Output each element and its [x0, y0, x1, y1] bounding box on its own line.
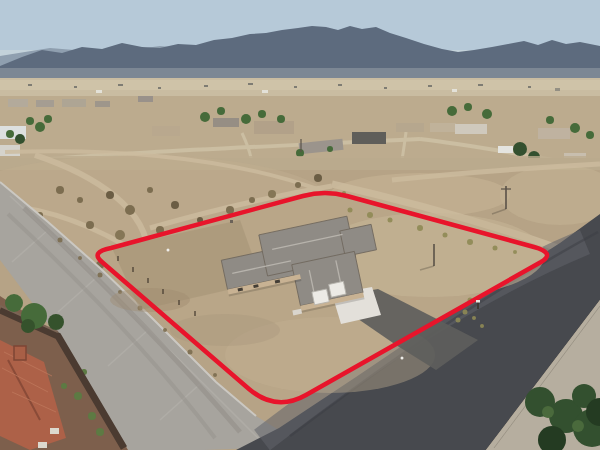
aerial-photo-container	[0, 0, 600, 450]
chimney	[14, 346, 26, 360]
rv-trailer	[498, 146, 513, 153]
lot-dark-patch2	[170, 314, 280, 346]
neighbor-window	[38, 442, 47, 448]
white-speck	[167, 249, 170, 252]
aerial-photograph	[0, 0, 600, 450]
white-speck	[401, 357, 404, 360]
lot-dark-patch	[110, 288, 190, 312]
garage-door-left	[312, 289, 329, 305]
neighbor-window	[50, 428, 59, 434]
garage-door-right	[329, 281, 346, 297]
plain-light-strip	[0, 80, 600, 90]
small-object	[230, 220, 233, 223]
